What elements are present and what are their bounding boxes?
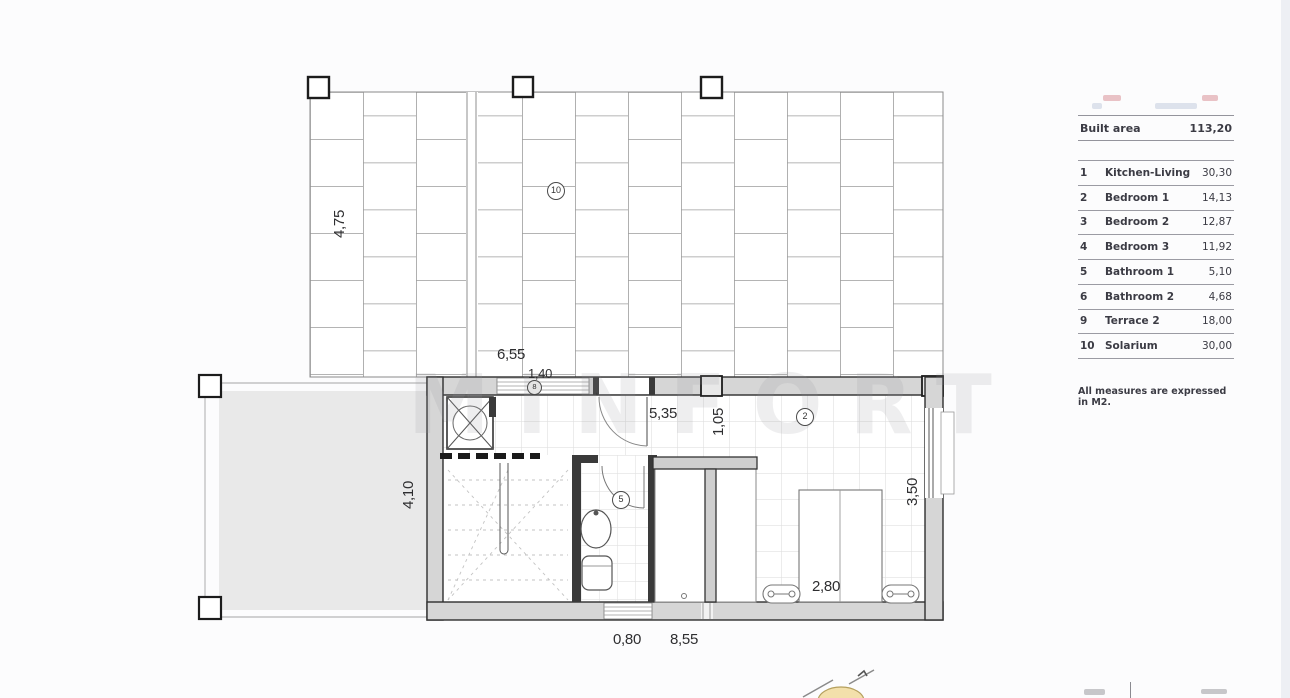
room-area: 18,00: [1202, 315, 1232, 327]
legend-note: All measures are expressed in M2.: [1078, 386, 1234, 408]
cutoff-text-fragment: [1084, 689, 1105, 695]
room-area: 11,92: [1202, 241, 1232, 253]
room-area: 30,00: [1202, 340, 1232, 352]
room-number: 2: [1080, 192, 1105, 204]
room-number: 9: [1080, 315, 1105, 327]
room-number: 10: [1080, 340, 1105, 352]
header-fragment: [1092, 103, 1102, 109]
right-edge-band: [1281, 0, 1290, 698]
legend-header-fragments: [1078, 90, 1234, 115]
marker-solarium: 10: [547, 182, 565, 200]
wardrobe: [653, 457, 757, 602]
room-name: Bedroom 3: [1105, 241, 1202, 253]
legend-row: 3 Bedroom 2 12,87: [1078, 210, 1234, 235]
room-area: 30,30: [1202, 167, 1232, 179]
room-area: 4,68: [1209, 291, 1232, 303]
legend-row: 10 Solarium 30,00: [1078, 333, 1234, 358]
dim-terrace-height: 4,10: [401, 473, 417, 517]
dim-bedroom-height: 3,50: [905, 470, 921, 514]
room-name: Bedroom 2: [1105, 216, 1202, 228]
room-area: 14,13: [1202, 192, 1232, 204]
built-area-label: Built area: [1080, 122, 1141, 135]
built-area-value: 113,20: [1190, 122, 1232, 135]
legend-row: 1 Kitchen-Living 30,30: [1078, 160, 1234, 185]
room-area: 12,87: [1202, 216, 1232, 228]
sun-logo: [803, 670, 874, 698]
toilet: [582, 556, 612, 590]
legend-row: 6 Bathroom 2 4,68: [1078, 284, 1234, 309]
room-name: Solarium: [1105, 340, 1202, 352]
sink: [581, 510, 611, 548]
legend-row: 2 Bedroom 1 14,13: [1078, 185, 1234, 210]
roof-tiled-area: [308, 77, 943, 377]
floorplan-page: MINFORT 4,75 6,55 1,40 5,35 1,05 4,10 3,…: [0, 0, 1290, 698]
cutoff-text-fragment: [1201, 689, 1227, 694]
room-area: 5,10: [1209, 266, 1232, 278]
room-number: 5: [1080, 266, 1105, 278]
dim-door-width: 0,80: [605, 632, 649, 648]
marker-column: 8: [527, 380, 542, 395]
room-number: 6: [1080, 291, 1105, 303]
header-fragment: [1103, 95, 1121, 101]
terrace-area: [199, 375, 427, 619]
legend-row: 4 Bedroom 3 11,92: [1078, 234, 1234, 259]
legend-row: 5 Bathroom 1 5,10: [1078, 259, 1234, 284]
room-name: Bedroom 1: [1105, 192, 1202, 204]
room-name: Bathroom 1: [1105, 266, 1209, 278]
marker-bathroom: 5: [612, 491, 630, 509]
room-name: Bathroom 2: [1105, 291, 1209, 303]
dim-roof-width: 6,55: [489, 347, 533, 363]
legend-row: 9 Terrace 2 18,00: [1078, 309, 1234, 334]
built-area-row: Built area 113,20: [1078, 115, 1234, 141]
dim-wall-length: 1,05: [711, 400, 727, 444]
dim-opening-width: 1,40: [518, 366, 562, 382]
room-name: Terrace 2: [1105, 315, 1202, 327]
room-rows: 1 Kitchen-Living 30,30 2 Bedroom 1 14,13…: [1078, 160, 1234, 359]
marker-bedroom: 2: [796, 408, 814, 426]
dim-bed-width: 2,80: [804, 579, 848, 595]
dim-hall-length: 5,35: [641, 406, 685, 422]
room-number: 3: [1080, 216, 1105, 228]
dim-bottom-width: 8,55: [662, 632, 706, 648]
room-name: Kitchen-Living: [1105, 167, 1202, 179]
cutoff-divider: [1130, 682, 1131, 698]
room-number: 4: [1080, 241, 1105, 253]
room-number: 1: [1080, 167, 1105, 179]
header-fragment: [1202, 95, 1218, 101]
area-legend: Built area 113,20 1 Kitchen-Living 30,30…: [1078, 90, 1234, 408]
dim-roof-height: 4,75: [332, 202, 348, 246]
header-fragment: [1155, 103, 1197, 109]
